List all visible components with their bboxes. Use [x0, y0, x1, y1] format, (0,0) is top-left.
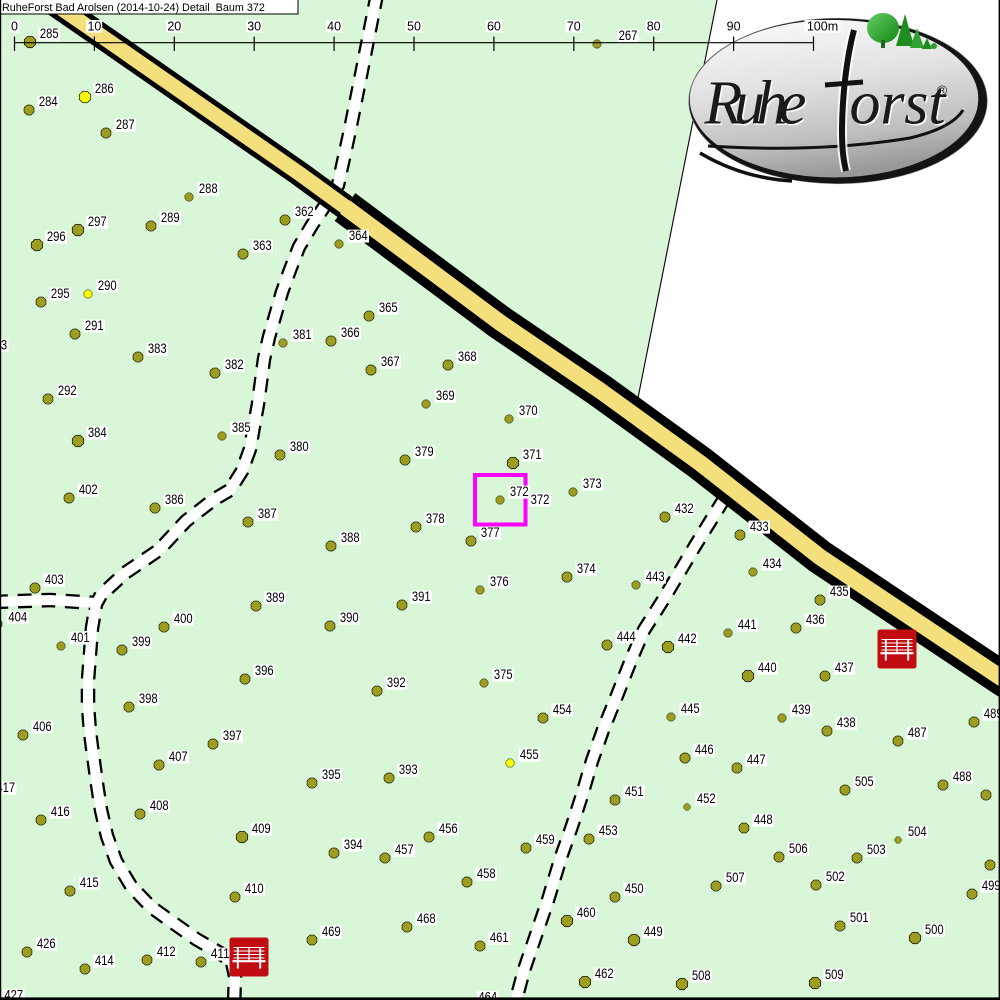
svg-text:372: 372	[510, 484, 529, 499]
svg-text:408: 408	[150, 798, 169, 813]
svg-text:288: 288	[199, 181, 218, 196]
svg-text:460: 460	[577, 905, 596, 920]
svg-text:402: 402	[79, 482, 98, 497]
svg-text:380: 380	[290, 439, 309, 454]
svg-text:447: 447	[747, 752, 766, 767]
svg-text:499: 499	[982, 878, 1000, 893]
svg-text:391: 391	[412, 589, 431, 604]
svg-text:368: 368	[458, 349, 477, 364]
svg-text:506: 506	[789, 841, 808, 856]
svg-text:442: 442	[678, 631, 697, 646]
svg-text:412: 412	[157, 944, 176, 959]
svg-text:458: 458	[477, 866, 496, 881]
svg-text:RuheForst Bad Arolsen (2014-10: RuheForst Bad Arolsen (2014-10-24) Detai…	[2, 2, 265, 14]
svg-text:394: 394	[344, 837, 363, 852]
svg-text:297: 297	[88, 214, 107, 229]
svg-text:434: 434	[763, 556, 782, 571]
svg-text:0: 0	[11, 19, 18, 33]
svg-text:80: 80	[647, 19, 661, 33]
svg-text:406: 406	[33, 719, 52, 734]
svg-text:407: 407	[169, 749, 188, 764]
svg-text:426: 426	[37, 936, 56, 951]
svg-text:373: 373	[583, 476, 602, 491]
svg-text:507: 507	[726, 870, 745, 885]
svg-text:411: 411	[211, 946, 230, 961]
svg-text:395: 395	[322, 767, 341, 782]
svg-text:384: 384	[88, 425, 107, 440]
svg-text:488: 488	[953, 769, 972, 784]
svg-text:437: 437	[835, 660, 854, 675]
svg-text:369: 369	[436, 388, 455, 403]
svg-text:404: 404	[8, 610, 27, 625]
svg-text:orst: orst	[850, 70, 948, 138]
svg-text:392: 392	[387, 675, 406, 690]
svg-text:459: 459	[536, 832, 555, 847]
svg-text:445: 445	[681, 701, 700, 716]
svg-text:378: 378	[426, 511, 445, 526]
svg-text:468: 468	[417, 911, 436, 926]
svg-text:452: 452	[697, 791, 716, 806]
svg-text:285: 285	[40, 26, 59, 41]
svg-text:417: 417	[0, 780, 15, 795]
svg-text:291: 291	[85, 318, 104, 333]
svg-text:455: 455	[520, 747, 539, 762]
svg-text:457: 457	[395, 842, 414, 857]
svg-text:382: 382	[225, 357, 244, 372]
svg-text:376: 376	[490, 574, 509, 589]
svg-text:508: 508	[692, 968, 711, 983]
svg-text:439: 439	[792, 702, 811, 717]
svg-text:505: 505	[855, 774, 874, 789]
svg-text:398: 398	[139, 691, 158, 706]
svg-text:374: 374	[577, 561, 596, 576]
svg-text:409: 409	[252, 821, 271, 836]
svg-text:Ruhe: Ruhe	[704, 70, 807, 138]
svg-text:489: 489	[984, 706, 1000, 721]
svg-text:399: 399	[132, 634, 151, 649]
svg-text:383: 383	[148, 341, 167, 356]
svg-text:365: 365	[379, 300, 398, 315]
svg-text:377: 377	[481, 525, 500, 540]
svg-text:443: 443	[646, 569, 665, 584]
svg-text:462: 462	[595, 966, 614, 981]
svg-text:448: 448	[754, 812, 773, 827]
svg-text:436: 436	[806, 612, 825, 627]
svg-text:433: 433	[750, 519, 769, 534]
svg-text:372: 372	[531, 492, 550, 507]
svg-text:461: 461	[490, 930, 509, 945]
svg-text:415: 415	[80, 875, 99, 890]
svg-text:444: 444	[617, 629, 636, 644]
svg-text:410: 410	[245, 881, 264, 896]
svg-text:362: 362	[295, 204, 314, 219]
svg-text:500: 500	[925, 922, 944, 937]
svg-text:414: 414	[95, 953, 114, 968]
svg-text:432: 432	[675, 501, 694, 516]
svg-text:449: 449	[644, 924, 663, 939]
svg-text:435: 435	[830, 584, 849, 599]
svg-text:100m: 100m	[807, 19, 838, 33]
svg-text:446: 446	[695, 742, 714, 757]
svg-text:366: 366	[341, 325, 360, 340]
svg-text:70: 70	[567, 19, 581, 33]
svg-text:30: 30	[247, 19, 261, 33]
svg-text:451: 451	[625, 784, 644, 799]
svg-text:502: 502	[826, 869, 845, 884]
svg-text:400: 400	[174, 611, 193, 626]
svg-text:501: 501	[850, 910, 869, 925]
svg-text:10: 10	[87, 19, 101, 33]
svg-text:385: 385	[232, 420, 251, 435]
svg-text:379: 379	[415, 444, 434, 459]
svg-text:40: 40	[327, 19, 341, 33]
svg-text:403: 403	[45, 572, 64, 587]
svg-text:389: 389	[266, 590, 285, 605]
svg-text:367: 367	[381, 354, 400, 369]
svg-text:396: 396	[255, 663, 274, 678]
svg-text:401: 401	[71, 630, 90, 645]
svg-text:440: 440	[758, 660, 777, 675]
svg-text:390: 390	[340, 610, 359, 625]
svg-text:370: 370	[519, 403, 538, 418]
svg-text:397: 397	[223, 728, 242, 743]
svg-text:450: 450	[625, 881, 644, 896]
svg-text:487: 487	[908, 725, 927, 740]
svg-text:364: 364	[349, 228, 368, 243]
svg-text:284: 284	[39, 94, 58, 109]
svg-text:393: 393	[399, 762, 418, 777]
svg-text:438: 438	[837, 715, 856, 730]
svg-text:453: 453	[599, 823, 618, 838]
svg-text:287: 287	[116, 117, 135, 132]
svg-text:363: 363	[253, 238, 272, 253]
svg-text:290: 290	[98, 278, 117, 293]
svg-text:50: 50	[407, 19, 421, 33]
svg-text:20: 20	[167, 19, 181, 33]
svg-text:469: 469	[322, 924, 341, 939]
svg-text:®: ®	[937, 82, 948, 98]
svg-text:60: 60	[487, 19, 501, 33]
svg-text:375: 375	[494, 667, 513, 682]
svg-text:387: 387	[258, 506, 277, 521]
svg-text:504: 504	[908, 824, 927, 839]
svg-text:296: 296	[47, 229, 66, 244]
svg-text:381: 381	[293, 327, 312, 342]
svg-text:388: 388	[341, 530, 360, 545]
svg-text:456: 456	[439, 821, 458, 836]
svg-text:295: 295	[51, 286, 70, 301]
svg-text:292: 292	[58, 383, 77, 398]
svg-text:454: 454	[553, 702, 572, 717]
svg-text:386: 386	[165, 492, 184, 507]
svg-text:503: 503	[867, 842, 886, 857]
svg-text:90: 90	[727, 19, 741, 33]
svg-text:441: 441	[738, 617, 757, 632]
svg-text:416: 416	[51, 804, 70, 819]
svg-text:267: 267	[619, 28, 638, 43]
svg-text:509: 509	[825, 967, 844, 982]
svg-text:286: 286	[95, 81, 114, 96]
svg-text:289: 289	[161, 210, 180, 225]
svg-text:371: 371	[523, 447, 542, 462]
